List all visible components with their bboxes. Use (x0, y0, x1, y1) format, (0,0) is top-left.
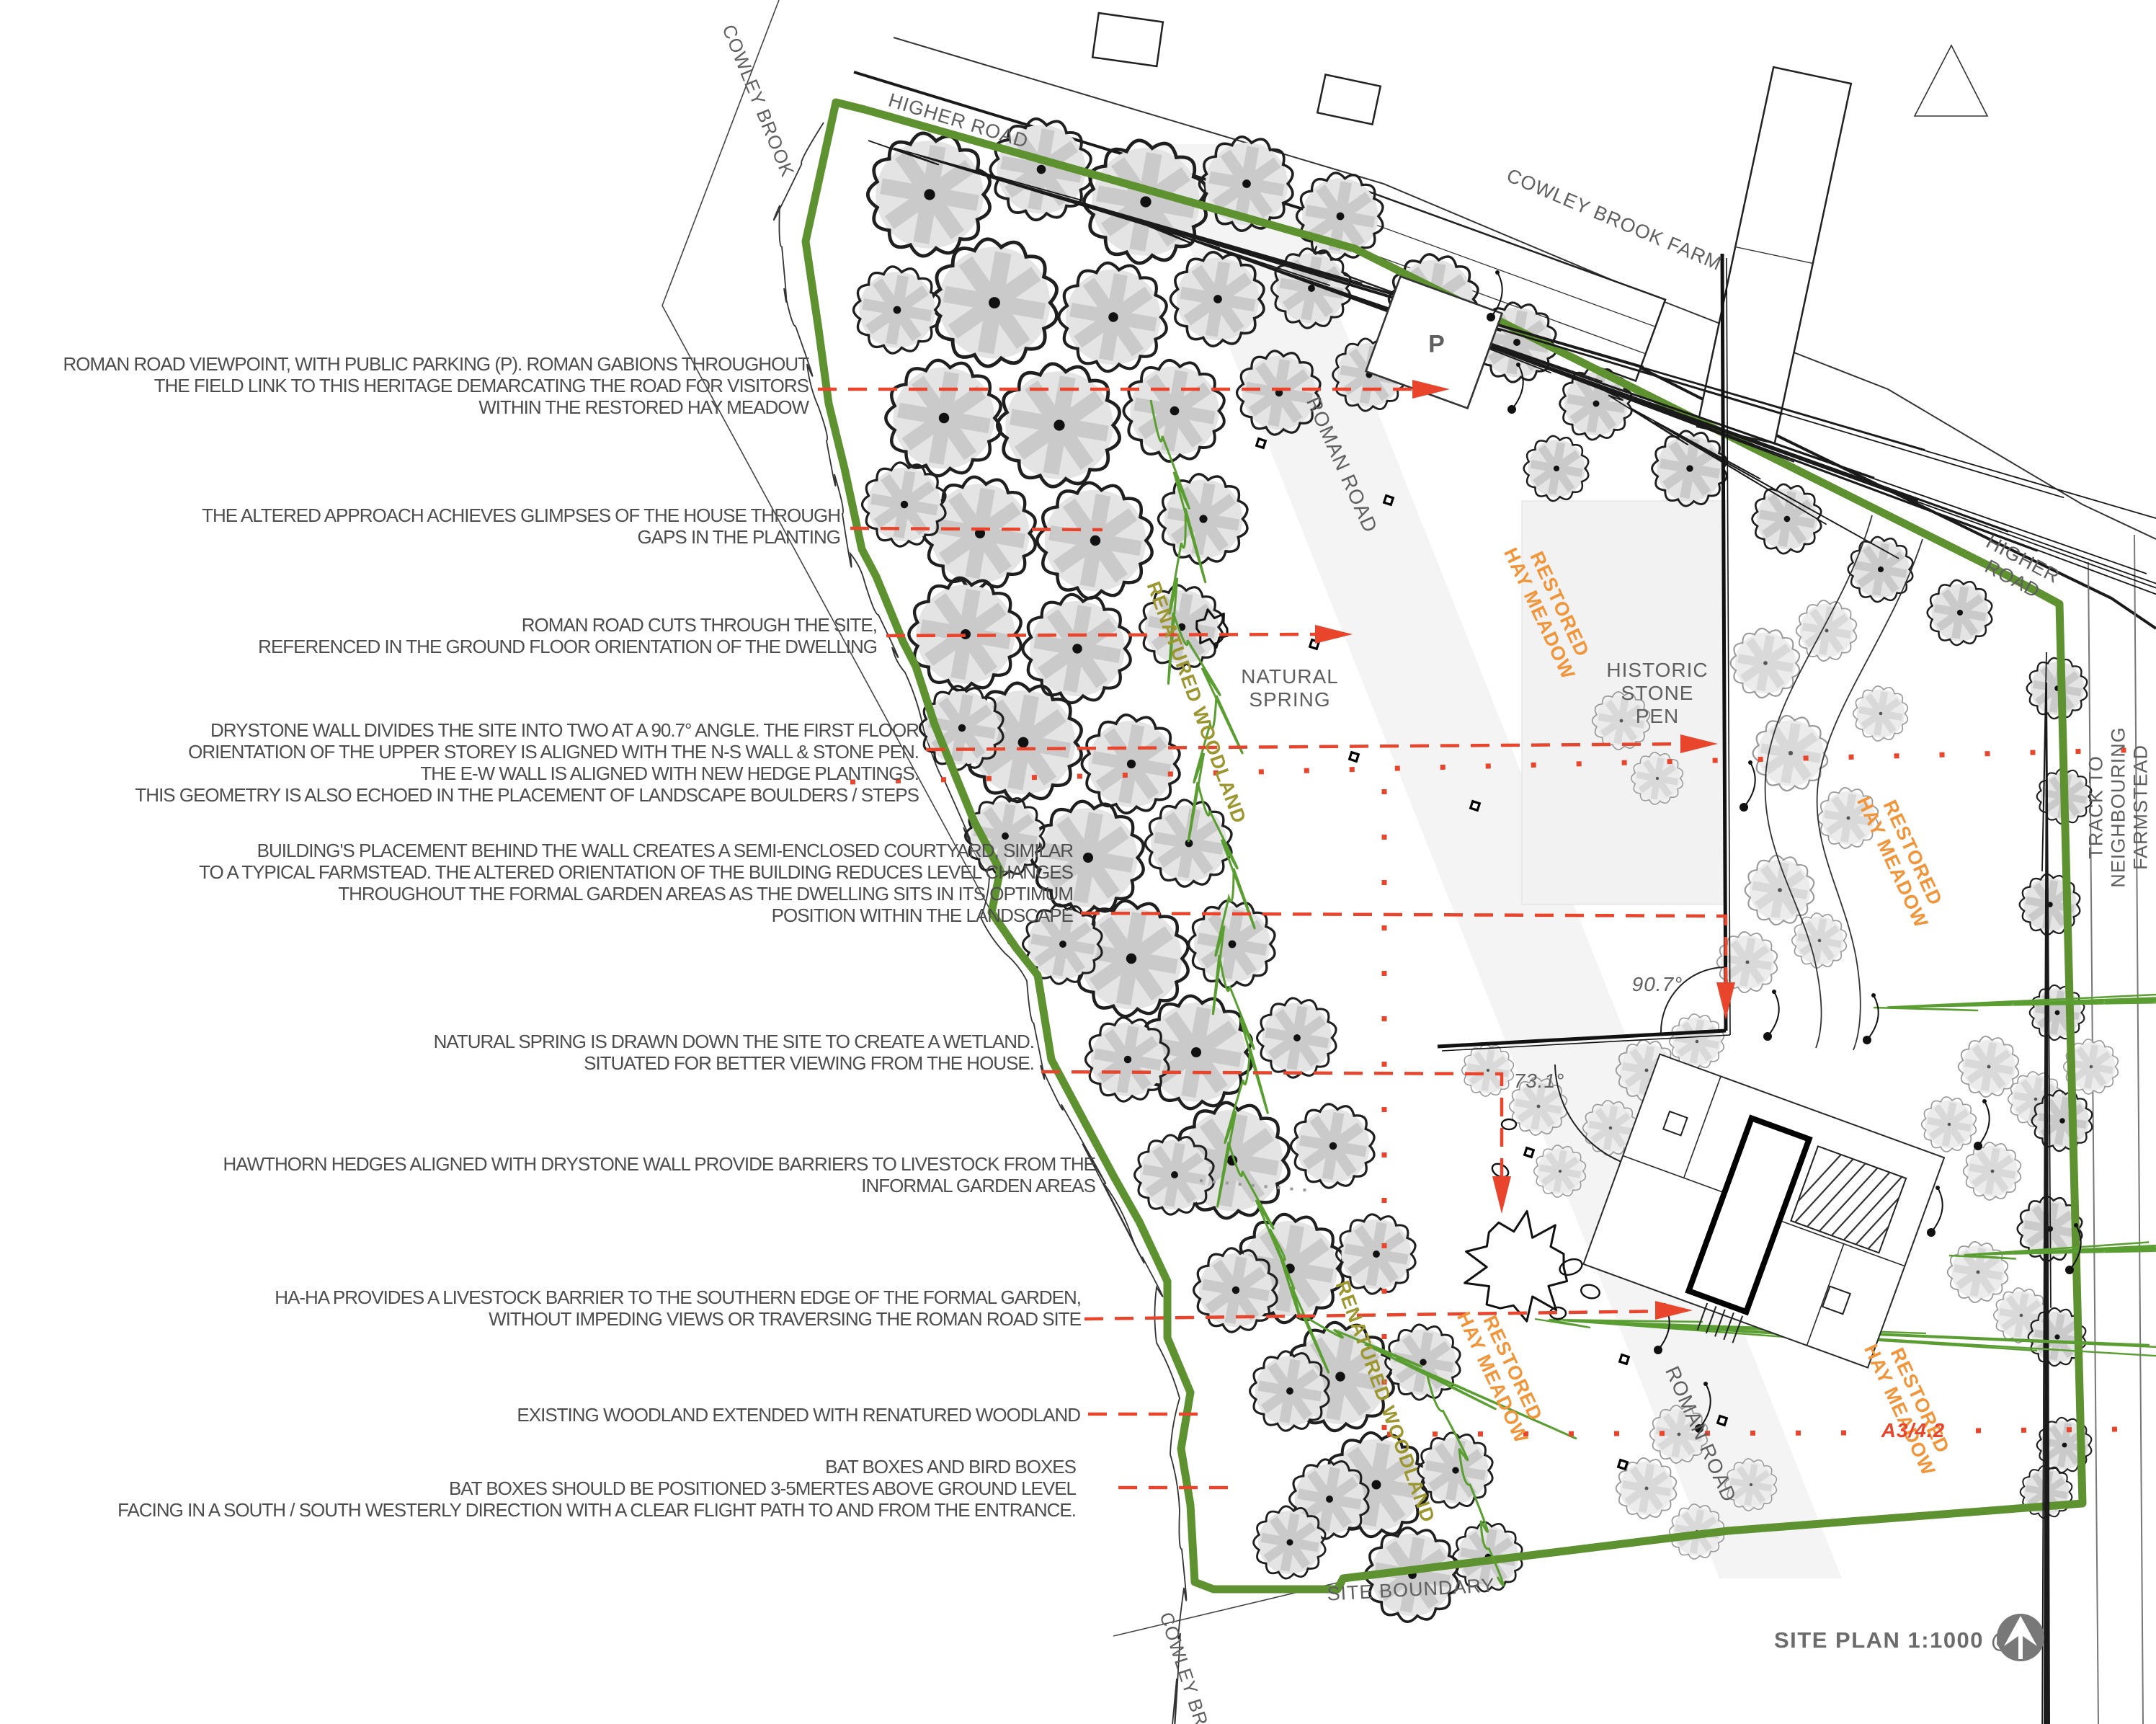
gabion-icon (1618, 1460, 1628, 1470)
gabion-icon (1718, 1416, 1727, 1426)
site-plan-canvas: COWLEY BROOKHIGHER ROADCOWLEY BROOK FARM… (0, 0, 2156, 1724)
tree-icon (1948, 1242, 2008, 1302)
boulder-icon (1558, 1256, 1585, 1278)
boulder-icon (1580, 1283, 1601, 1300)
farm-building (1092, 13, 1163, 66)
section-dashed-line (1084, 1301, 1693, 1320)
tree-icon (1135, 1135, 1214, 1214)
tree-icon (1257, 998, 1337, 1077)
tree-icon (1123, 360, 1224, 461)
section-dashed-line (850, 528, 1102, 530)
hedge-line (1874, 924, 2156, 1010)
bird-box-marker (1763, 990, 1779, 1041)
tree-icon (1745, 856, 1814, 925)
gabion-icon (1257, 439, 1266, 448)
tree-icon (1037, 483, 1151, 598)
tree-icon (1922, 1097, 1977, 1152)
tree-icon (2030, 985, 2085, 1040)
tree-icon (1194, 1248, 1277, 1332)
tree-icon (1086, 1018, 1169, 1101)
tree-icon (1959, 1036, 2019, 1097)
section-arrow-icon (1492, 1176, 1511, 1214)
tree-icon (1818, 788, 1879, 848)
tree-icon (966, 796, 1045, 876)
tree-icon (868, 133, 989, 256)
gabion-icon (1350, 752, 1359, 762)
farm-track-line (2088, 562, 2098, 1724)
gabion-icon (1525, 1148, 1534, 1158)
tree-icon (1534, 1145, 1586, 1197)
tree-icon (1250, 1351, 1329, 1431)
site-plan-drawing (0, 0, 2156, 1724)
gabion-icon (1620, 1355, 1629, 1364)
tree-icon (1386, 1325, 1461, 1400)
tree-icon (930, 239, 1056, 366)
north-arrow-icon (1995, 1612, 2046, 1663)
wetland-outline (1465, 1212, 1567, 1322)
tree-icon (1291, 1104, 1374, 1188)
tree-icon (1159, 474, 1247, 564)
tree-icon (1031, 801, 1143, 914)
tree-icon (1753, 716, 1828, 791)
tree-icon (1462, 1044, 1514, 1096)
tree-icon (1964, 1142, 2021, 1200)
bird-box-marker (1739, 760, 1755, 812)
tree-icon (1796, 600, 1857, 661)
tree-icon (1059, 263, 1166, 371)
tree-icon (923, 477, 1035, 590)
tree-icon (1853, 686, 1908, 741)
tree-icon (997, 364, 1119, 486)
farm-roof-outline (1915, 45, 1987, 116)
bird-box-marker (1863, 993, 1879, 1044)
tree-icon (854, 267, 940, 353)
tree-icon (1752, 484, 1822, 554)
gabion-icon (1471, 801, 1480, 811)
field-boundary-line (662, 0, 779, 306)
tree-icon (1524, 436, 1589, 501)
tree-icon (1189, 901, 1275, 987)
section-arrow-icon (1716, 982, 1735, 1020)
tree-icon (863, 463, 945, 546)
gabion-icon (1384, 496, 1394, 505)
tree-icon (1146, 800, 1231, 887)
tree-icon (1082, 715, 1179, 813)
tree-icon (1140, 585, 1223, 669)
tree-icon (1337, 1214, 1416, 1294)
tree-icon (886, 360, 1000, 476)
tree-icon (2027, 658, 2088, 719)
farm-building (1697, 67, 1851, 443)
tree-icon (1731, 628, 1800, 698)
tree-icon (1170, 252, 1263, 346)
tree-icon (1792, 913, 1847, 968)
farm-track-line (2134, 535, 2143, 1724)
tree-icon (1928, 580, 1992, 645)
tree-icon (1848, 537, 1913, 602)
farm-building (1317, 74, 1381, 124)
boulder-icon (1502, 1119, 1516, 1129)
tree-icon (1418, 1433, 1493, 1508)
tree-icon (1254, 1506, 1326, 1578)
